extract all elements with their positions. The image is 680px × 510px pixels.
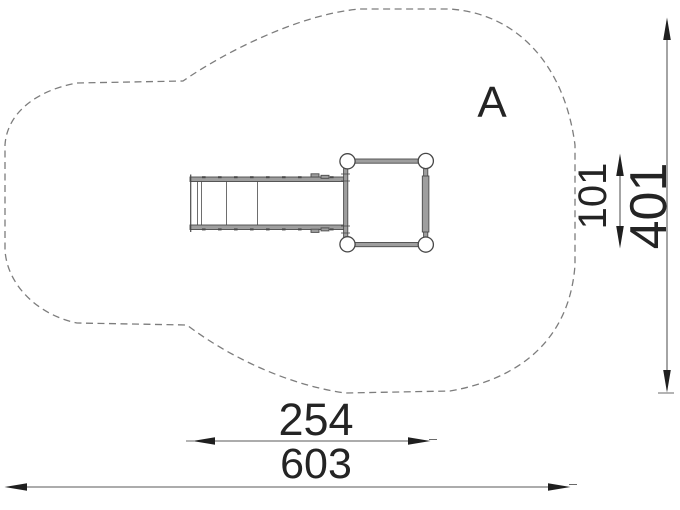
- plan-view-svg: A 101 401 254 603: [0, 0, 680, 510]
- platform-panel-right: [422, 176, 429, 232]
- arrow-left-icon: [5, 483, 28, 491]
- post-bottom-right: [418, 237, 433, 252]
- slide-rail-ticks: [202, 176, 334, 230]
- slide-dividers: [198, 182, 258, 226]
- arrow-right-icon: [408, 437, 431, 445]
- safety-zone-outline: [5, 9, 575, 393]
- slide-top-view: [190, 174, 344, 233]
- arrow-up-icon: [663, 18, 671, 41]
- post-top-right: [418, 153, 433, 168]
- dim-label-total-width: 603: [280, 440, 352, 488]
- post-bottom-left: [340, 237, 355, 252]
- arrow-left-icon: [193, 437, 216, 445]
- platform-edge-top: [345, 159, 426, 163]
- dim-label-total-depth: 401: [620, 163, 678, 250]
- arrow-down-icon: [663, 370, 671, 393]
- dim-label-equipment-width: 254: [278, 394, 353, 445]
- dim-label-platform-depth: 101: [571, 163, 615, 230]
- post-top-left: [340, 154, 355, 169]
- platform-top-view: [340, 153, 434, 252]
- arrow-right-icon: [548, 483, 571, 491]
- zone-label: A: [477, 78, 507, 127]
- slide-clamp-marks: [311, 174, 329, 233]
- platform-edge-bottom: [345, 243, 426, 247]
- plan-drawing-canvas: A 101 401 254 603: [0, 0, 680, 510]
- platform-edge-left: [344, 163, 348, 243]
